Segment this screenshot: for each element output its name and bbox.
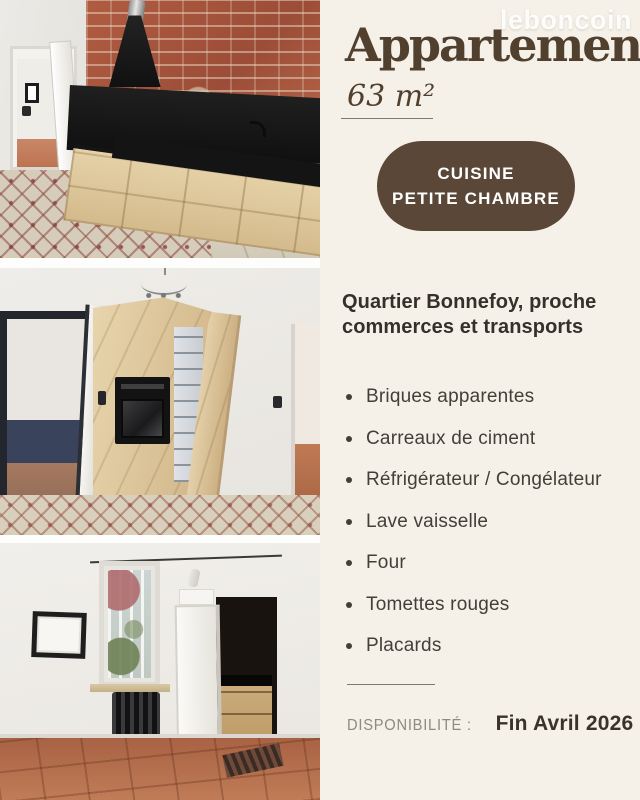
oven-handle bbox=[121, 384, 165, 389]
photo-gap bbox=[0, 258, 320, 268]
surface-area: 63 m² bbox=[347, 79, 435, 114]
location-heading: Quartier Bonnefoy, proche commerces et t… bbox=[342, 290, 640, 341]
feature-list: Briques apparentes Carreaux de ciment Ré… bbox=[344, 386, 602, 677]
oven-glass bbox=[121, 399, 165, 438]
listing-flyer: leboncoin Appartement 63 m² CUISINE PETI… bbox=[0, 0, 640, 800]
list-item: Four bbox=[344, 552, 602, 574]
availability-value: Fin Avril 2026 bbox=[496, 712, 634, 736]
window bbox=[99, 561, 160, 687]
badge-line-1: CUISINE bbox=[437, 164, 514, 184]
badge-line-2: PETITE CHAMBRE bbox=[392, 189, 560, 209]
info-panel: leboncoin Appartement 63 m² CUISINE PETI… bbox=[320, 0, 640, 800]
window-glass bbox=[108, 570, 151, 678]
page-title: Appartement bbox=[345, 18, 640, 72]
list-item: Réfrigérateur / Congélateur bbox=[344, 469, 602, 491]
list-item: Lave vaisselle bbox=[344, 511, 602, 533]
rooms-badge: CUISINE PETITE CHAMBRE bbox=[377, 141, 575, 231]
window-sill bbox=[90, 684, 170, 692]
cabinet-handle bbox=[98, 391, 106, 405]
cast-iron-radiator bbox=[112, 692, 160, 736]
list-item: Carreaux de ciment bbox=[344, 428, 602, 450]
light-switch bbox=[22, 106, 31, 116]
built-in-oven bbox=[115, 377, 169, 444]
picture-frame bbox=[25, 83, 39, 103]
list-item: Placards bbox=[344, 635, 602, 657]
small-room-window-photo bbox=[0, 543, 320, 800]
divider bbox=[341, 118, 433, 119]
availability-row: DISPONIBILITÉ : Fin Avril 2026 bbox=[347, 712, 633, 736]
boiler-box bbox=[179, 589, 214, 604]
photo-gap bbox=[0, 535, 320, 543]
picture-frame bbox=[31, 611, 87, 659]
light-switch bbox=[273, 396, 282, 408]
availability-label: DISPONIBILITÉ : bbox=[347, 717, 472, 735]
divider bbox=[347, 684, 435, 685]
cabinet-oven-fridge-photo bbox=[0, 268, 320, 535]
terracotta-floor bbox=[17, 139, 60, 167]
cement-tile-floor bbox=[0, 495, 320, 535]
kitchen-brick-wall-photo bbox=[0, 0, 320, 258]
list-item: Briques apparentes bbox=[344, 386, 602, 408]
right-doorway bbox=[291, 324, 320, 506]
list-item: Tomettes rouges bbox=[344, 594, 602, 616]
dark-counter bbox=[221, 675, 272, 686]
photo-column bbox=[0, 0, 320, 800]
